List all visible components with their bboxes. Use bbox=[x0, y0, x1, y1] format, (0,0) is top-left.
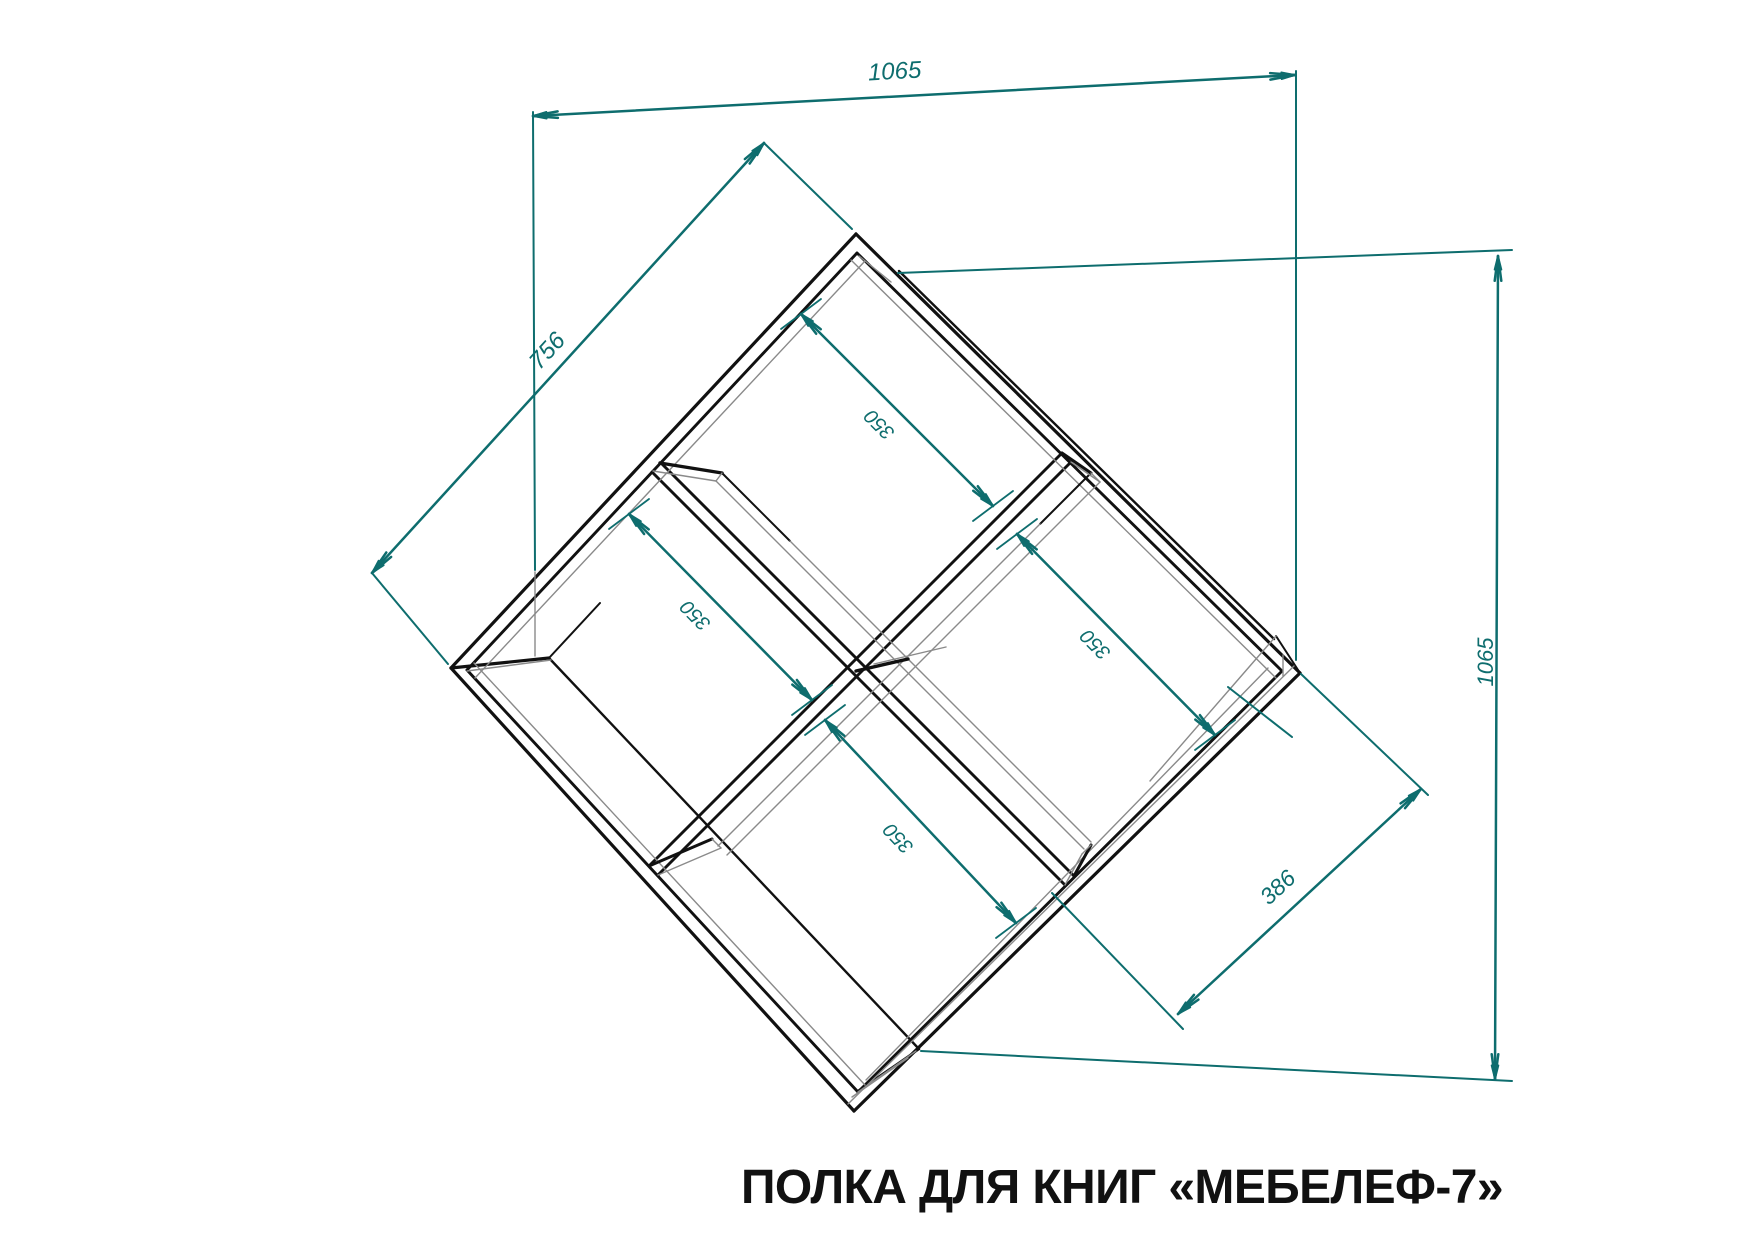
svg-text:ПОЛКА ДЛЯ КНИГ «МЕБЕЛЕФ-7»: ПОЛКА ДЛЯ КНИГ «МЕБЕЛЕФ-7» bbox=[741, 1161, 1503, 1214]
svg-text:1065: 1065 bbox=[1473, 637, 1498, 687]
svg-text:1065: 1065 bbox=[867, 57, 922, 87]
